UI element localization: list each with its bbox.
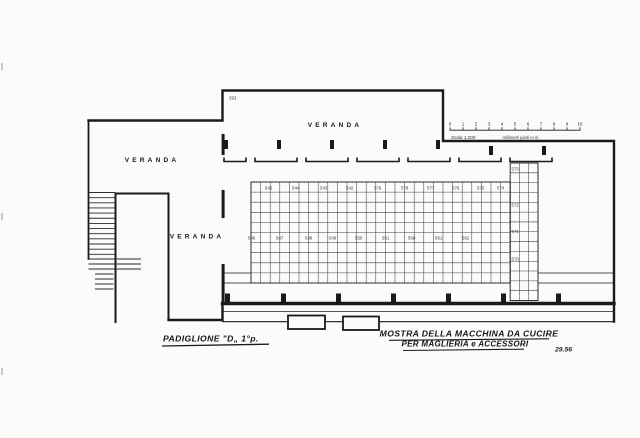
- floor-plan-drawing: Scala 1:200 millimetri piedi m.m. 012345…: [0, 0, 640, 438]
- stand-number: 546: [248, 236, 256, 241]
- stand-number: 544: [292, 185, 300, 190]
- stand-number: 571: [512, 229, 520, 234]
- stand-number: 574: [497, 185, 505, 190]
- pavilion-title: PADIGLIONE "D„ 1°p.: [163, 334, 259, 344]
- exhibition-title-line1: MOSTRA DELLA MACCHINA DA CUCIRE: [380, 329, 559, 339]
- stand-number: 579: [374, 185, 382, 190]
- stand-number: 562: [462, 236, 470, 241]
- stand-number: 576: [452, 185, 460, 190]
- veranda-label-left: VERANDA: [125, 157, 180, 164]
- stand-number: 561: [435, 236, 443, 241]
- exhibition-title-line2: PER MAGLIERIA e ACCESSORI: [402, 340, 529, 349]
- veranda-label-top: VERANDA: [308, 122, 363, 129]
- scale-units-label: millimetri piedi m.m.: [503, 135, 540, 140]
- stand-number: 543: [320, 185, 328, 190]
- stand-number: 572: [512, 203, 520, 208]
- stand-number: 570: [512, 257, 520, 262]
- scale-label: Scala 1:200: [451, 135, 476, 140]
- room-number: 393: [229, 96, 237, 101]
- stand-number: 549: [329, 236, 337, 241]
- stand-number: 578: [401, 185, 409, 190]
- stand-number: 550: [355, 236, 363, 241]
- stand-number: 575: [477, 185, 485, 190]
- veranda-label-lower: VERANDA: [170, 234, 225, 241]
- scale-tick-label: 10: [578, 122, 583, 127]
- stand-number: 573: [512, 167, 520, 172]
- sheet-number: 29.56: [554, 347, 572, 354]
- stand-number: 547: [276, 236, 284, 241]
- entrance-booth: [343, 317, 379, 331]
- stand-number: 560: [408, 236, 416, 241]
- stand-number: 545: [265, 185, 273, 190]
- stand-number: 542: [346, 185, 354, 190]
- paper-background: [0, 0, 640, 438]
- stand-number: 551: [382, 236, 390, 241]
- stand-number: 577: [427, 185, 435, 190]
- stand-number: 548: [305, 236, 313, 241]
- entrance-booth: [288, 316, 325, 330]
- scanned-floor-plan-page: Scala 1:200 millimetri piedi m.m. 012345…: [0, 0, 640, 438]
